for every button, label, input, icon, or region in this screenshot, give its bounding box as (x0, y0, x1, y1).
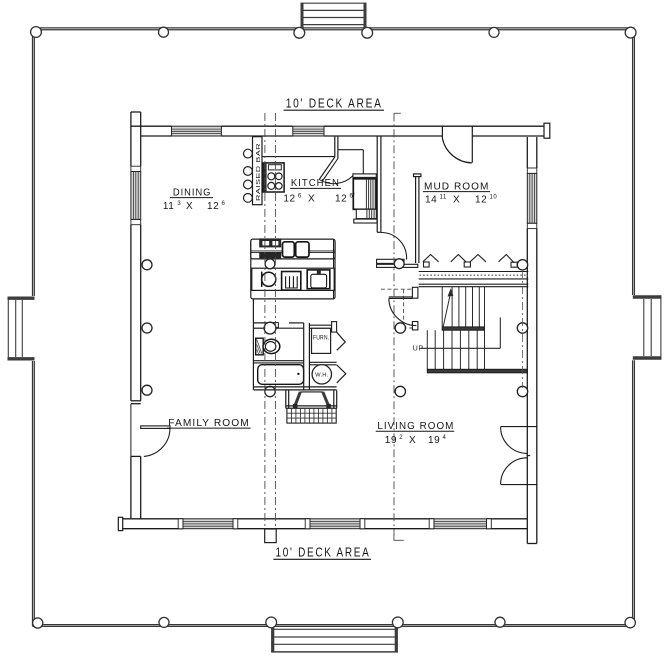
svg-text:LIVING ROOM: LIVING ROOM (377, 420, 454, 432)
svg-text:10' DECK AREA: 10' DECK AREA (286, 96, 383, 111)
svg-text:KITCHEN: KITCHEN (291, 177, 340, 189)
svg-text:10' DECK AREA: 10' DECK AREA (276, 545, 371, 560)
svg-text:FURN.: FURN. (313, 336, 330, 342)
svg-text:DINING: DINING (173, 186, 212, 198)
svg-text:UP: UP (413, 346, 424, 353)
svg-text:MUD ROOM: MUD ROOM (424, 180, 490, 192)
svg-text:RAISED BAR: RAISED BAR (256, 143, 262, 201)
svg-text:W.H.: W.H. (315, 373, 328, 379)
svg-text:FAMILY ROOM: FAMILY ROOM (168, 417, 250, 429)
